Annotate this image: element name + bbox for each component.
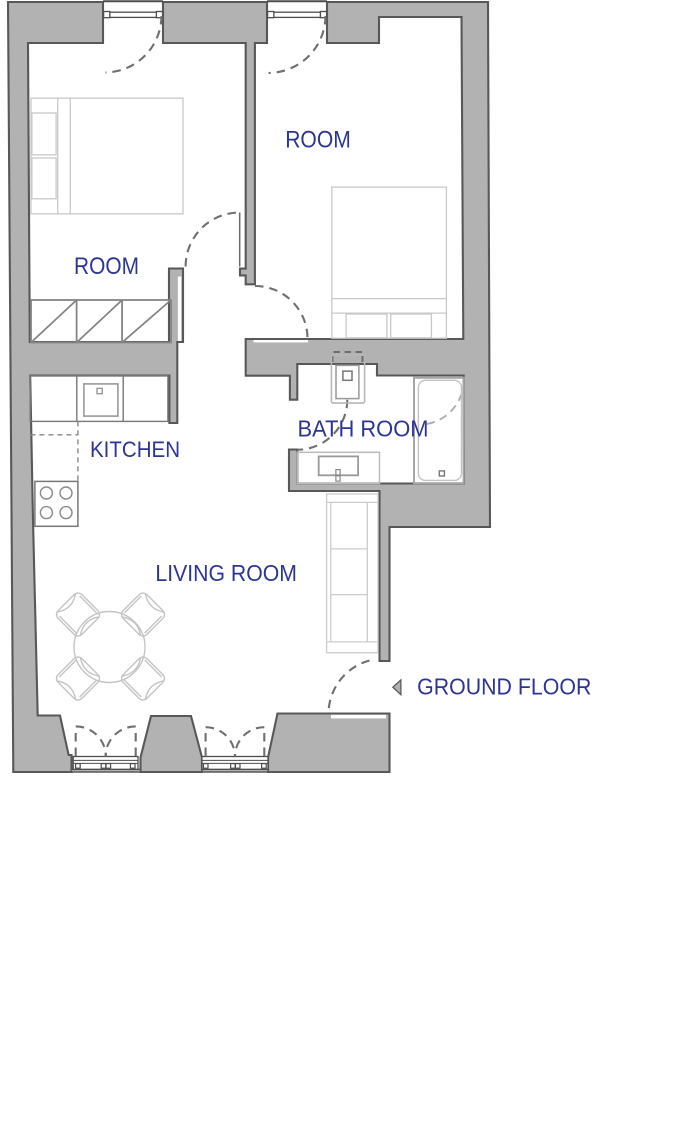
- svg-text:ROOM: ROOM: [74, 253, 139, 280]
- svg-text:LIVING ROOM: LIVING ROOM: [155, 560, 297, 586]
- svg-text:BATH ROOM: BATH ROOM: [298, 415, 429, 441]
- svg-text:KITCHEN: KITCHEN: [90, 437, 180, 462]
- svg-text:GROUND FLOOR: GROUND FLOOR: [417, 673, 591, 699]
- svg-text:ROOM: ROOM: [285, 126, 351, 153]
